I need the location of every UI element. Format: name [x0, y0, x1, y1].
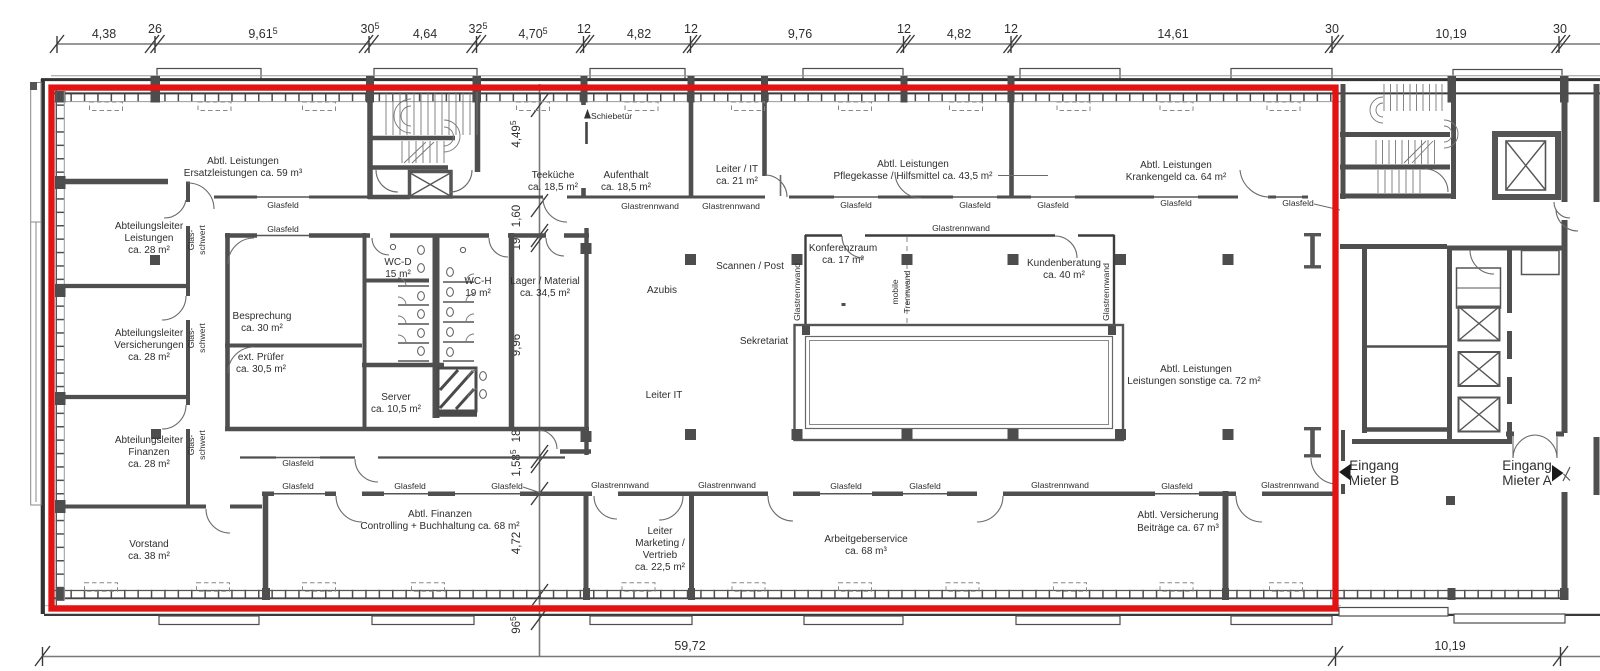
svg-text:Besprechung: Besprechung [233, 311, 292, 322]
svg-text:ca. 18,5 m²: ca. 18,5 m² [601, 182, 652, 193]
svg-text:ca. 28 m²: ca. 28 m² [128, 459, 170, 470]
svg-text:ca. 38 m²: ca. 38 m² [128, 551, 170, 562]
svg-text:ca. 28 m²: ca. 28 m² [128, 352, 170, 363]
svg-text:Glasfeld: Glasfeld [1282, 198, 1314, 208]
svg-text:19 m²: 19 m² [465, 288, 491, 299]
svg-text:ca. 18,5 m²: ca. 18,5 m² [528, 182, 579, 193]
svg-text:Pflegekasse / Hilfsmittel ca.: Pflegekasse / Hilfsmittel ca. 43,5 m² [834, 171, 994, 182]
svg-text:15 m²: 15 m² [385, 269, 411, 280]
svg-text:Glasfeld: Glasfeld [282, 481, 314, 491]
svg-text:Glasfeld: Glasfeld [267, 200, 299, 210]
svg-text:30: 30 [1553, 22, 1567, 36]
svg-text:ca. 28 m²: ca. 28 m² [128, 245, 170, 256]
svg-text:Glas-: Glas- [186, 328, 196, 349]
svg-text:Glasfeld: Glasfeld [909, 481, 941, 491]
svg-text:Leiter / IT: Leiter / IT [716, 164, 758, 175]
svg-text:Glas-: Glas- [186, 230, 196, 251]
svg-text:Glasfeld: Glasfeld [1161, 481, 1193, 491]
svg-text:Glasfeld: Glasfeld [840, 200, 872, 210]
svg-text:4,82: 4,82 [947, 27, 971, 41]
svg-text:Glastrennwand: Glastrennwand [698, 480, 756, 490]
svg-text:Controlling + Buchhaltung ca.: Controlling + Buchhaltung ca. 68 m² [360, 521, 520, 532]
svg-text:Glas-: Glas- [186, 435, 196, 456]
svg-text:Kundenberatung: Kundenberatung [1027, 258, 1101, 269]
svg-text:Azubis: Azubis [647, 285, 677, 296]
svg-text:Abtl. Leistungen: Abtl. Leistungen [1140, 160, 1212, 171]
svg-text:Ersatzleistungen ca. 59 m³: Ersatzleistungen ca. 59 m³ [184, 168, 303, 179]
svg-text:Abteilungsleiter: Abteilungsleiter [115, 328, 184, 339]
svg-text:Eingang: Eingang [1349, 458, 1399, 473]
svg-text:30: 30 [1325, 22, 1339, 36]
svg-text:Leiter: Leiter [647, 526, 673, 537]
svg-text:4,72: 4,72 [511, 532, 523, 554]
svg-text:1,60: 1,60 [511, 205, 523, 227]
svg-text:4,82: 4,82 [627, 27, 651, 41]
svg-text:schwert: schwert [197, 430, 207, 460]
svg-text:Glasfeld: Glasfeld [267, 224, 299, 234]
svg-text:Glastrennwand: Glastrennwand [792, 263, 802, 321]
svg-text:Krankengeld ca. 64 m²: Krankengeld ca. 64 m² [1126, 172, 1227, 183]
svg-text:Glasfeld: Glasfeld [1160, 198, 1192, 208]
svg-text:ca. 10,5 m²: ca. 10,5 m² [371, 404, 422, 415]
svg-text:ca. 68 m³: ca. 68 m³ [845, 546, 887, 557]
svg-text:26: 26 [148, 22, 162, 36]
svg-text:Mieter B: Mieter B [1349, 473, 1399, 488]
svg-text:Trennwand: Trennwand [902, 270, 912, 313]
svg-text:ca. 21 m²: ca. 21 m² [716, 176, 758, 187]
svg-text:ca. 30 m²: ca. 30 m² [241, 323, 283, 334]
svg-text:Abtl. Finanzen: Abtl. Finanzen [408, 509, 472, 520]
svg-text:12: 12 [577, 22, 591, 36]
svg-text:12: 12 [1004, 22, 1018, 36]
svg-text:18: 18 [511, 430, 523, 443]
svg-text:Glastrennwand: Glastrennwand [932, 223, 990, 233]
svg-text:schwert: schwert [197, 225, 207, 255]
svg-text:Abtl. Leistungen: Abtl. Leistungen [207, 156, 279, 167]
svg-text:Leiter IT: Leiter IT [646, 390, 683, 401]
svg-text:12: 12 [684, 22, 698, 36]
svg-text:Schiebetür: Schiebetür [591, 111, 632, 121]
svg-text:Glasfeld: Glasfeld [491, 481, 523, 491]
svg-text:Glastrennwand: Glastrennwand [1261, 480, 1319, 490]
svg-text:Scannen / Post: Scannen / Post [716, 261, 784, 272]
svg-text:Abtl. Leistungen: Abtl. Leistungen [877, 159, 949, 170]
svg-text:10,19: 10,19 [1434, 639, 1465, 653]
svg-text:Glastrennwand: Glastrennwand [702, 201, 760, 211]
svg-text:Vorstand: Vorstand [129, 539, 168, 550]
svg-text:Arbeitgeberservice: Arbeitgeberservice [824, 534, 908, 545]
svg-text:12: 12 [897, 22, 911, 36]
svg-text:Eingang: Eingang [1502, 458, 1552, 473]
svg-text:Sekretariat: Sekretariat [740, 336, 789, 347]
svg-text:9,76: 9,76 [788, 27, 812, 41]
svg-text:Vertrieb: Vertrieb [643, 550, 678, 561]
svg-text:Teeküche: Teeküche [532, 170, 575, 181]
svg-text:Abtl. Leistungen: Abtl. Leistungen [1160, 364, 1232, 375]
svg-text:schwert: schwert [197, 323, 207, 353]
svg-text:Abteilungsleiter: Abteilungsleiter [115, 435, 184, 446]
svg-text:4,38: 4,38 [92, 27, 116, 41]
svg-text:Server: Server [381, 392, 411, 403]
svg-text:mobile: mobile [890, 279, 900, 305]
svg-text:Glastrennwand: Glastrennwand [621, 201, 679, 211]
svg-text:ca. 17 m²: ca. 17 m² [822, 255, 864, 266]
svg-text:Glasfeld: Glasfeld [282, 458, 314, 468]
svg-text:WC-D: WC-D [384, 257, 411, 268]
svg-text:ext. Prüfer: ext. Prüfer [238, 352, 285, 363]
svg-text:Mieter A: Mieter A [1502, 473, 1552, 488]
svg-text:ca. 34,5 m²: ca. 34,5 m² [520, 288, 571, 299]
svg-text:ca. 40 m²: ca. 40 m² [1043, 270, 1085, 281]
svg-text:Abtl. Versicherung: Abtl. Versicherung [1137, 510, 1218, 521]
svg-text:14,61: 14,61 [1157, 27, 1188, 41]
svg-text:ca. 22,5 m²: ca. 22,5 m² [635, 562, 686, 573]
svg-text:Leistungen sonstige ca. 72 m²: Leistungen sonstige ca. 72 m² [1127, 376, 1261, 387]
svg-text:Glasfeld: Glasfeld [1037, 200, 1069, 210]
svg-text:Konferenzraum: Konferenzraum [809, 243, 877, 254]
svg-text:59,72: 59,72 [674, 639, 705, 653]
svg-text:Marketing /: Marketing / [635, 538, 685, 549]
svg-text:10,19: 10,19 [1435, 27, 1466, 41]
svg-text:Lager / Material: Lager / Material [510, 276, 579, 287]
svg-text:Glastrennwand: Glastrennwand [1031, 480, 1089, 490]
svg-text:WC-H: WC-H [464, 276, 491, 287]
svg-text:4,64: 4,64 [413, 27, 437, 41]
svg-text:ca. 30,5 m²: ca. 30,5 m² [236, 364, 287, 375]
svg-text:Finanzen: Finanzen [128, 447, 169, 458]
svg-text:Glasfeld: Glasfeld [830, 481, 862, 491]
svg-text:Beiträge ca. 67 m³: Beiträge ca. 67 m³ [1137, 523, 1219, 534]
svg-text:Abteilungsleiter: Abteilungsleiter [115, 221, 184, 232]
svg-text:Glasfeld: Glasfeld [394, 481, 426, 491]
svg-text:Leistungen: Leistungen [125, 233, 174, 244]
svg-text:Glasfeld: Glasfeld [959, 200, 991, 210]
svg-text:Versicherungen: Versicherungen [114, 340, 184, 351]
svg-text:Glastrennwand: Glastrennwand [1101, 263, 1111, 321]
svg-text:Aufenthalt: Aufenthalt [603, 170, 648, 181]
svg-text:Glastrennwand: Glastrennwand [591, 480, 649, 490]
